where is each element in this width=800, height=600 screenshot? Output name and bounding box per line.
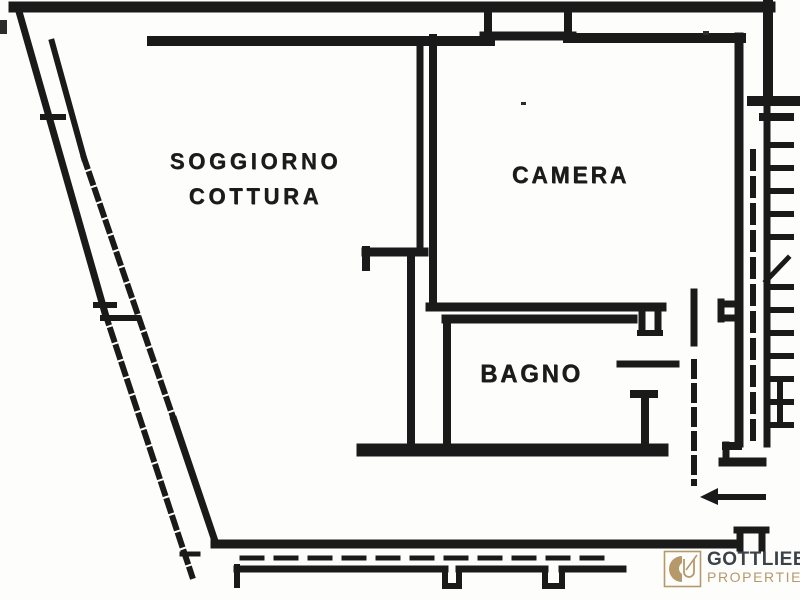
top-inner-walls — [152, 14, 741, 41]
logo-brand-name: GOTTLIEB — [707, 550, 800, 569]
floor-plan-page: SOGGIORNO COTTURA CAMERA BAGNO GOTTLIEB … — [0, 0, 800, 600]
divider-wall — [366, 38, 433, 447]
entrance-arrow — [700, 488, 763, 505]
room-label-camera: CAMERA — [468, 162, 672, 190]
room-label-cottura: COTTURA — [153, 183, 357, 210]
slanted-inner-wall — [43, 42, 216, 554]
logo-brand-word: PROPERTIES — [707, 570, 800, 584]
logo-text: GOTTLIEB PROPERTIES — [707, 550, 800, 584]
floor-plan-drawing — [0, 0, 800, 600]
scan-specks — [0, 20, 709, 105]
gottlieb-properties-logo: GOTTLIEB PROPERTIES — [663, 550, 800, 588]
logo-monogram-icon — [663, 550, 702, 588]
balcony-railing — [752, 101, 795, 446]
room-label-bagno: BAGNO — [429, 360, 633, 389]
room-label-soggiorno: SOGGIORNO — [153, 148, 357, 175]
